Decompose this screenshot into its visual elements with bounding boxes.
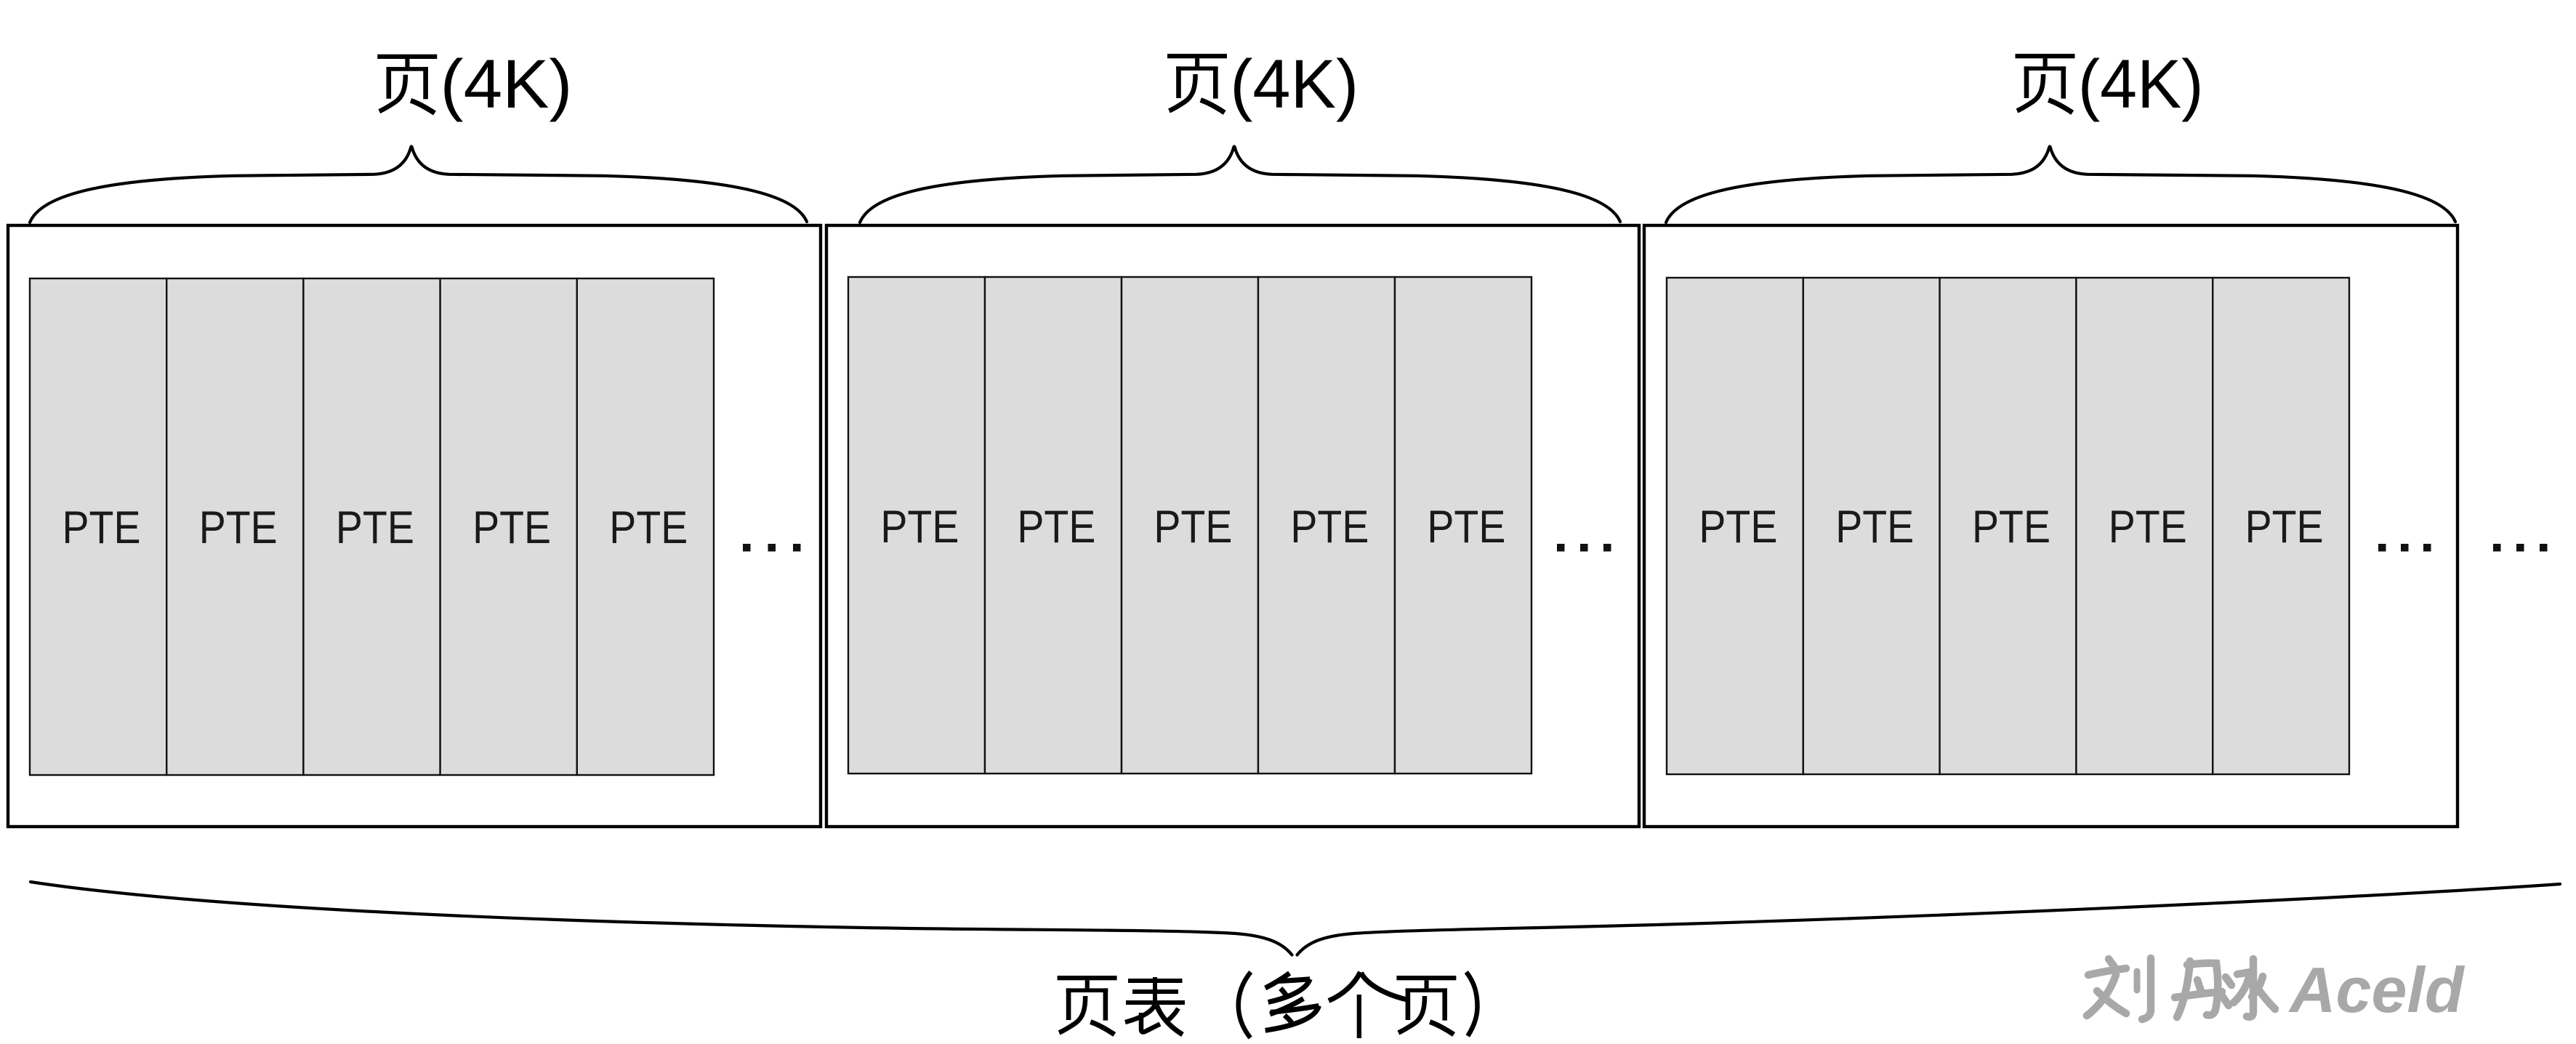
svg-text:PTE: PTE — [1290, 502, 1369, 553]
svg-text:(4K): (4K) — [440, 46, 573, 123]
svg-text:PTE: PTE — [1972, 502, 2050, 553]
svg-text:PTE: PTE — [63, 502, 141, 553]
svg-text:PTE: PTE — [1017, 502, 1095, 553]
svg-text:PTE: PTE — [880, 502, 959, 553]
svg-text:(4K): (4K) — [2078, 46, 2204, 123]
svg-text:PTE: PTE — [1154, 502, 1232, 553]
svg-text:PTE: PTE — [1427, 502, 1505, 553]
svg-text:PTE: PTE — [1699, 502, 1777, 553]
svg-text:PTE: PTE — [609, 502, 688, 553]
svg-text:PTE: PTE — [336, 502, 414, 553]
svg-text:(4K): (4K) — [1230, 46, 1359, 123]
svg-text:Aceld: Aceld — [2288, 954, 2466, 1026]
svg-text:PTE: PTE — [1835, 502, 1914, 553]
svg-text:PTE: PTE — [472, 502, 551, 553]
svg-text:PTE: PTE — [2109, 502, 2187, 553]
svg-text:PTE: PTE — [2245, 502, 2324, 553]
svg-text:PTE: PTE — [199, 502, 278, 553]
